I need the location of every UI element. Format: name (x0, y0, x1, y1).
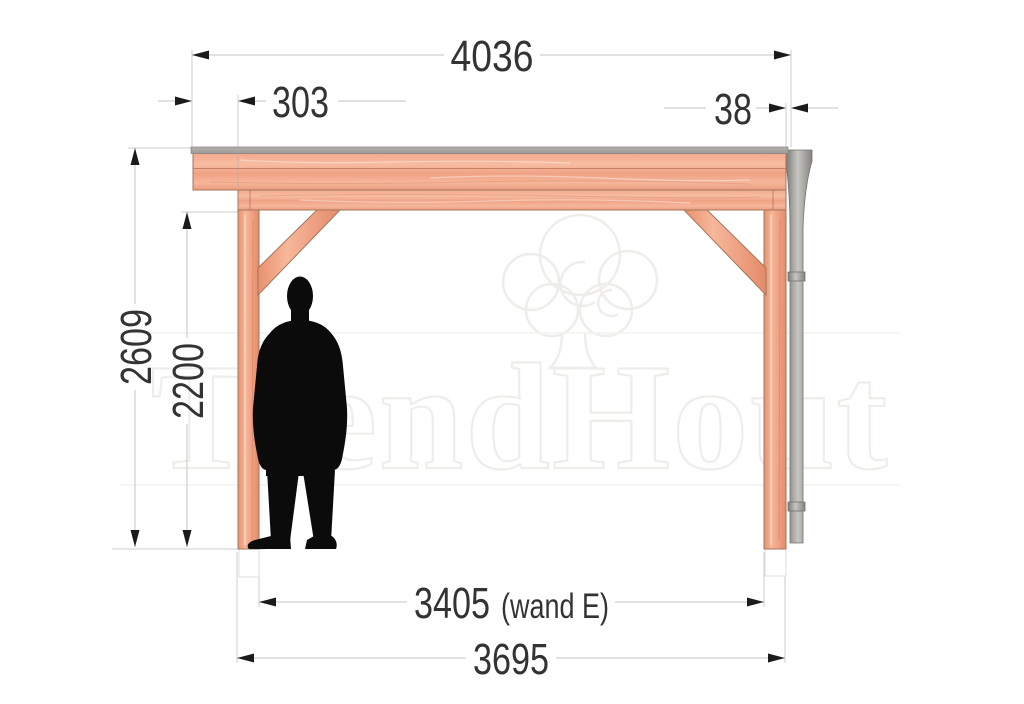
dim-label-roof-total: 4036 (451, 32, 534, 81)
dim-label-frame-total: 3695 (473, 635, 549, 684)
dim-wall-span: 3405 (wand E) (259, 579, 764, 628)
dim-label-clear-height: 2200 (164, 343, 213, 419)
dim-frame-total-width: 3695 (237, 635, 785, 684)
dim-left-overhang: 303 (158, 78, 406, 127)
dim-label-left-overhang: 303 (272, 78, 329, 127)
dim-label-total-height: 2609 (112, 309, 161, 385)
human-scale-silhouette (248, 277, 348, 550)
dim-label-wall-span-suffix: (wand E) (501, 587, 609, 626)
dim-roof-total-width: 4036 (192, 32, 791, 81)
right-post (764, 210, 786, 549)
right-corner-brace (684, 210, 766, 295)
dim-label-right-overhang: 38 (714, 85, 752, 134)
downpipe-coupling-lower (788, 502, 805, 511)
dim-right-overhang: 38 (664, 85, 838, 134)
right-post-footing (765, 549, 786, 576)
technical-drawing-page: TrendHout (0, 0, 1024, 704)
fascia-board (193, 154, 786, 191)
downpipe-coupling-upper (788, 272, 805, 281)
dim-label-wall-span-value: 3405 (414, 579, 490, 628)
left-post-footing (239, 549, 259, 577)
roof-edge-strip (191, 147, 788, 154)
veranda-side-view-drawing: TrendHout (0, 0, 1024, 704)
